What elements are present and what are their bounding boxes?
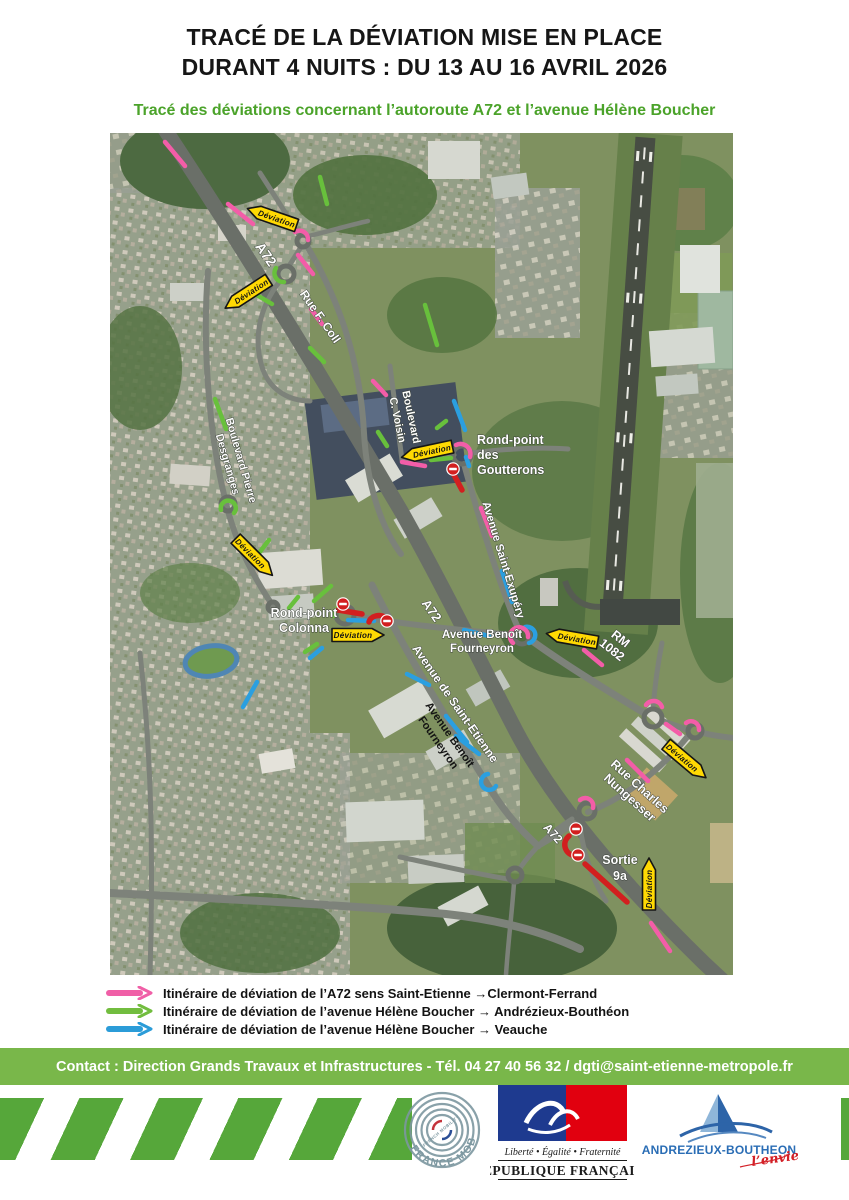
building [170,283,204,301]
building [655,374,698,397]
page-title: TRACÉ DE LA DÉVIATION MISE EN PLACE DURA… [0,22,849,83]
terrain-forest [140,563,240,623]
airport-apron [600,599,680,625]
no-entry-sign [447,463,459,475]
republique-motto: Liberté • Égalité • Fraternité [504,1146,621,1158]
poster-page: TRACÉ DE LA DÉVIATION MISE EN PLACE DURA… [0,0,849,1200]
divider [498,1160,627,1161]
green-arrow-icon [106,1004,154,1018]
legend-item-boucher-veauche: Itinéraire de déviation de l’avenue Hélè… [106,1020,629,1038]
map-subtitle: Tracé des déviations concernant l’autoro… [0,102,849,120]
no-entry-sign [381,615,393,627]
deviation-arrow: Déviation [643,858,656,910]
legend-label: Itinéraire de déviation de l’avenue Hélè… [163,1022,547,1037]
no-entry-sign [572,849,584,861]
road-label-line: Rond-point [271,606,338,620]
republique-name: RÉPUBLIQUE FRANÇAISE [490,1163,635,1178]
deviation-arrow: Déviation [332,629,384,642]
building [649,327,715,367]
terrain-dirt [710,823,733,883]
blue-arrow-icon [106,1022,154,1036]
page-title-line1: TRACÉ DE LA DÉVIATION MISE EN PLACE [0,22,849,52]
road-label-line: Sortie [602,853,637,867]
building [428,141,480,179]
republique-francaise-logo: Liberté • Égalité • Fraternité RÉPUBLIQU… [490,1085,635,1187]
road-label-line: Avenue Benoît [442,629,522,641]
building [345,800,424,843]
no-entry-sign [337,598,349,610]
france-mobilites-icon: FRANCE MOBILITÉS FRENCH MOBILITY [402,1090,482,1175]
green-route-segment [431,458,451,460]
deviation-arrow-label: Déviation [334,631,373,640]
republique-francaise-icon: Liberté • Égalité • Fraternité RÉPUBLIQU… [490,1085,635,1182]
building [680,245,720,293]
deviation-map: Déviation Déviation Déviation Déviation … [110,133,733,975]
road-label-line: Fourneyron [450,643,514,655]
andrezieux-boutheon-icon: ANDREZIEUX-BOUTHEON l’envie [640,1092,798,1168]
legend: Itinéraire de déviation de l’A72 sens Sa… [106,984,629,1038]
legend-item-a72: Itinéraire de déviation de l’A72 sens Sa… [106,984,629,1002]
road-label-line: Rond-point [477,433,544,447]
divider [498,1179,627,1180]
road-label-line: 9a [613,869,628,883]
andrezieux-boutheon-logo: ANDREZIEUX-BOUTHEON l’envie [640,1092,798,1173]
map-canvas: Déviation Déviation Déviation Déviation … [110,133,733,975]
road-label-line: Colonna [279,621,330,635]
sail-icon [718,1094,738,1132]
building [540,578,558,606]
footer-stripes [0,1098,412,1160]
greenhouse-field [696,463,733,618]
road-label-colonna: Rond-point Colonna [271,606,338,635]
deviation-arrow-label: Déviation [645,870,654,909]
legend-label: Itinéraire de déviation de l’A72 sens Sa… [163,986,597,1001]
legend-label: Itinéraire de déviation de l’avenue Hélè… [163,1004,629,1019]
no-entry-sign [570,823,582,835]
legend-item-boucher-andrezieux: Itinéraire de déviation de l’avenue Hélè… [106,1002,629,1020]
page-title-line2: DURANT 4 NUITS : DU 13 AU 16 AVRIL 2026 [0,52,849,82]
building [169,464,210,487]
terrain-urban [495,188,580,338]
road-label-line: des [477,448,499,462]
footer-stripe-right [841,1098,849,1160]
road-label-line: Goutterons [477,463,544,477]
terrain-forest [387,277,497,353]
contact-bar: Contact : Direction Grands Travaux et In… [0,1048,849,1085]
wave-swoosh [688,1132,766,1142]
pink-arrow-icon [106,986,154,1000]
france-mobilites-logo: FRANCE MOBILITÉS FRENCH MOBILITY [402,1090,482,1180]
